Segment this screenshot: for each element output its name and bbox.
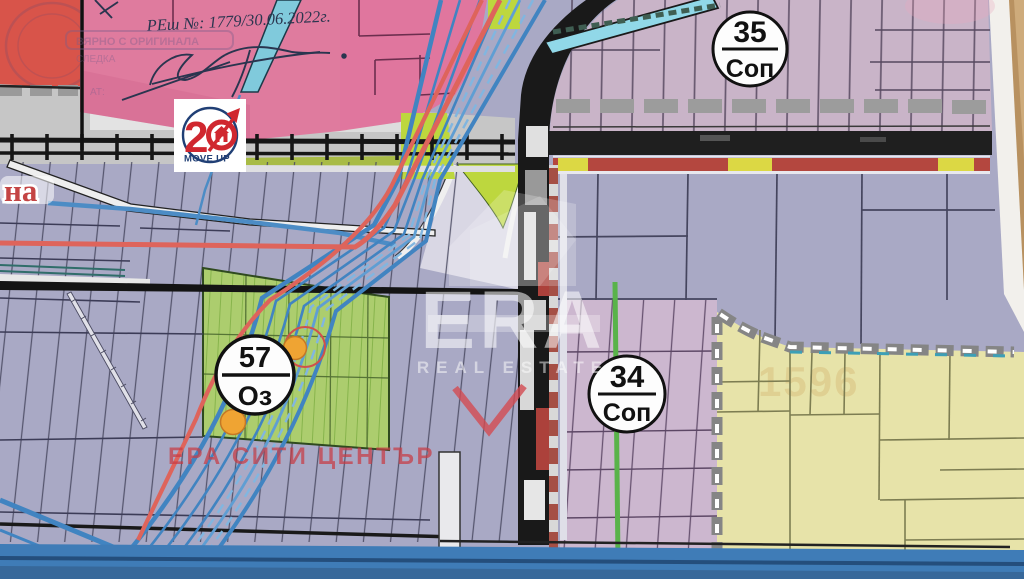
svg-text:MOVE UP: MOVE UP xyxy=(184,154,230,165)
svg-text:34: 34 xyxy=(610,359,645,394)
svg-text:АТ:: АТ: xyxy=(90,87,105,98)
svg-text:ЕРА СИТИ ЦЕНТЪР: ЕРА СИТИ ЦЕНТЪР xyxy=(168,443,435,470)
svg-text:Соп: Соп xyxy=(603,399,651,427)
svg-text:Соп: Соп xyxy=(726,55,774,83)
svg-text:ERA: ERA xyxy=(420,275,605,366)
svg-text:Оз: Оз xyxy=(238,381,272,411)
svg-text:ВЯРНО С ОРИГИНАЛА: ВЯРНО С ОРИГИНАЛА xyxy=(76,36,199,48)
svg-text:57: 57 xyxy=(239,342,271,374)
svg-text:35: 35 xyxy=(733,16,766,49)
svg-text:на: на xyxy=(4,173,38,208)
svg-text:REAL ESTATE: REAL ESTATE xyxy=(417,358,609,377)
svg-text:СЛЕДКА: СЛЕДКА xyxy=(76,54,116,65)
